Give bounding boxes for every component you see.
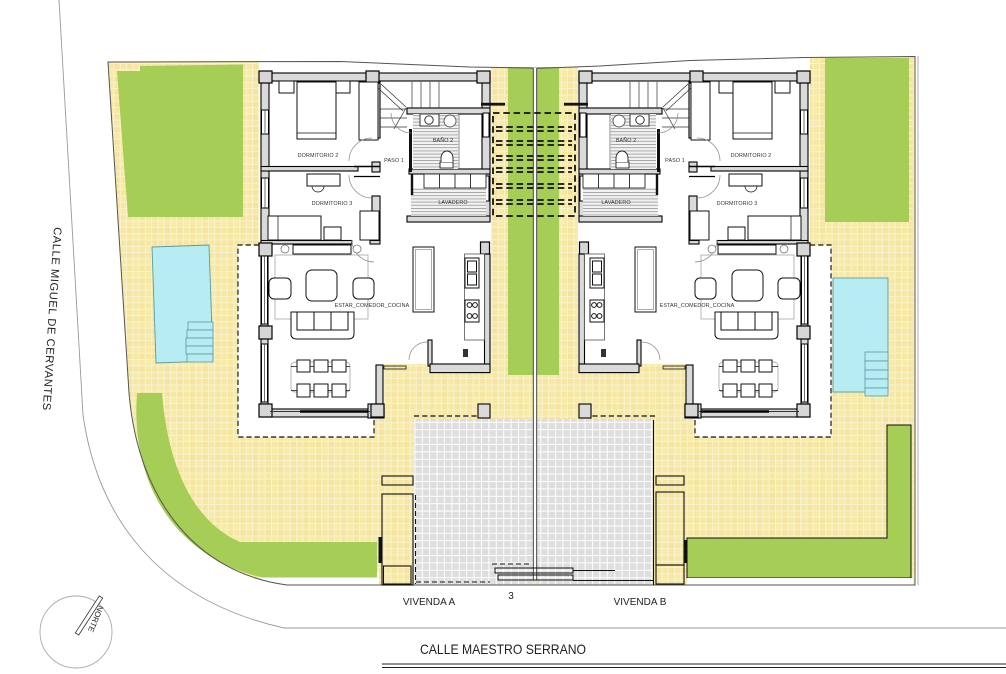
svg-text:ESTAR_COMEDOR_COCINA: ESTAR_COMEDOR_COCINA: [660, 303, 735, 309]
svg-text:BAÑO 2: BAÑO 2: [433, 137, 453, 144]
svg-text:BAÑO 2: BAÑO 2: [616, 137, 636, 144]
svg-text:DORMITORIO 3: DORMITORIO 3: [312, 201, 353, 207]
svg-text:PASO 1: PASO 1: [665, 158, 685, 164]
svg-text:3: 3: [508, 591, 514, 602]
svg-text:VIVENDA B: VIVENDA B: [614, 597, 667, 608]
svg-text:DORMITORIO 2: DORMITORIO 2: [298, 153, 339, 159]
svg-text:LAVADERO: LAVADERO: [438, 200, 467, 206]
svg-text:VIVENDA A: VIVENDA A: [403, 597, 456, 608]
svg-text:CALLE MIGUEL DE CERVANTES: CALLE MIGUEL DE CERVANTES: [40, 227, 63, 411]
svg-text:ESTAR_COMEDOR_COCINA: ESTAR_COMEDOR_COCINA: [335, 303, 410, 309]
svg-text:CALLE MAESTRO SERRANO: CALLE MAESTRO SERRANO: [420, 641, 586, 657]
svg-text:DORMITORIO 2: DORMITORIO 2: [731, 153, 772, 159]
svg-text:DORMITORIO 3: DORMITORIO 3: [717, 201, 758, 207]
svg-text:LAVADERO: LAVADERO: [601, 200, 630, 206]
svg-text:PASO 1: PASO 1: [384, 158, 404, 164]
